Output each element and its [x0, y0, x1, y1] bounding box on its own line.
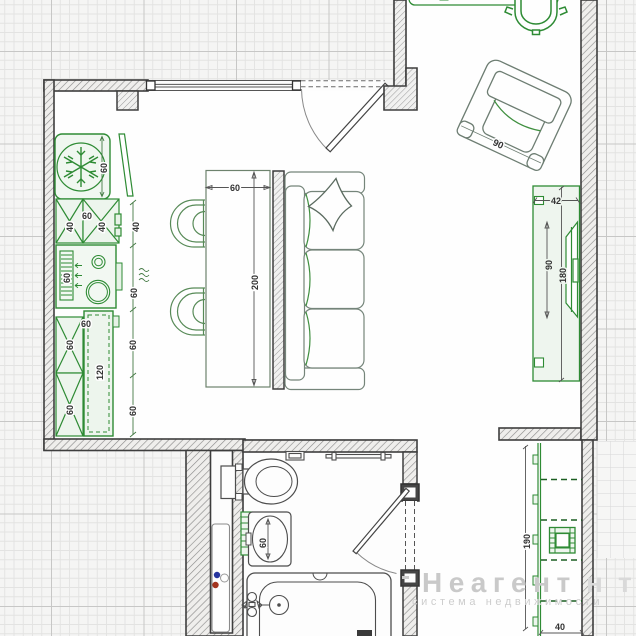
- svg-text:40: 40: [65, 222, 75, 232]
- svg-text:система недвижимости: система недвижимости: [412, 596, 603, 608]
- svg-text:60: 60: [258, 538, 268, 548]
- svg-text:60: 60: [81, 319, 91, 329]
- svg-text:60: 60: [128, 406, 138, 416]
- svg-text:40: 40: [97, 222, 107, 232]
- svg-text:40: 40: [555, 622, 565, 632]
- svg-text:60: 60: [129, 288, 139, 298]
- svg-text:60: 60: [99, 163, 109, 173]
- svg-text:90: 90: [544, 260, 554, 270]
- svg-text:н: н: [586, 567, 603, 598]
- svg-text:60: 60: [82, 211, 92, 221]
- svg-text:Неагент: Неагент: [422, 567, 577, 598]
- svg-text:60: 60: [230, 183, 240, 193]
- svg-text:200: 200: [250, 275, 260, 290]
- svg-text:120: 120: [95, 365, 105, 380]
- svg-text:60: 60: [128, 340, 138, 350]
- svg-text:180: 180: [558, 268, 568, 283]
- svg-text:42: 42: [551, 196, 561, 206]
- svg-text:60: 60: [65, 405, 75, 415]
- svg-text:60: 60: [65, 340, 75, 350]
- svg-text:т: т: [618, 567, 632, 598]
- svg-text:40: 40: [131, 222, 141, 232]
- svg-text:190: 190: [522, 534, 532, 549]
- svg-text:60: 60: [62, 273, 72, 283]
